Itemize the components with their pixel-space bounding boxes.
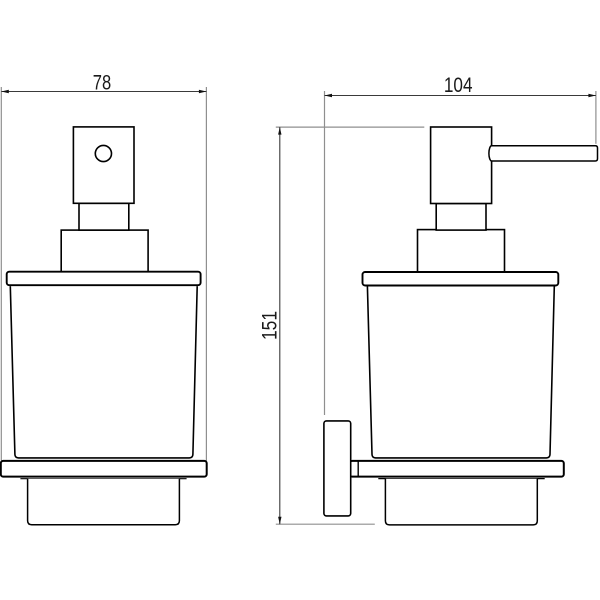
svg-text:78: 78	[93, 70, 111, 94]
svg-text:104: 104	[444, 73, 473, 97]
svg-text:151: 151	[257, 311, 281, 340]
